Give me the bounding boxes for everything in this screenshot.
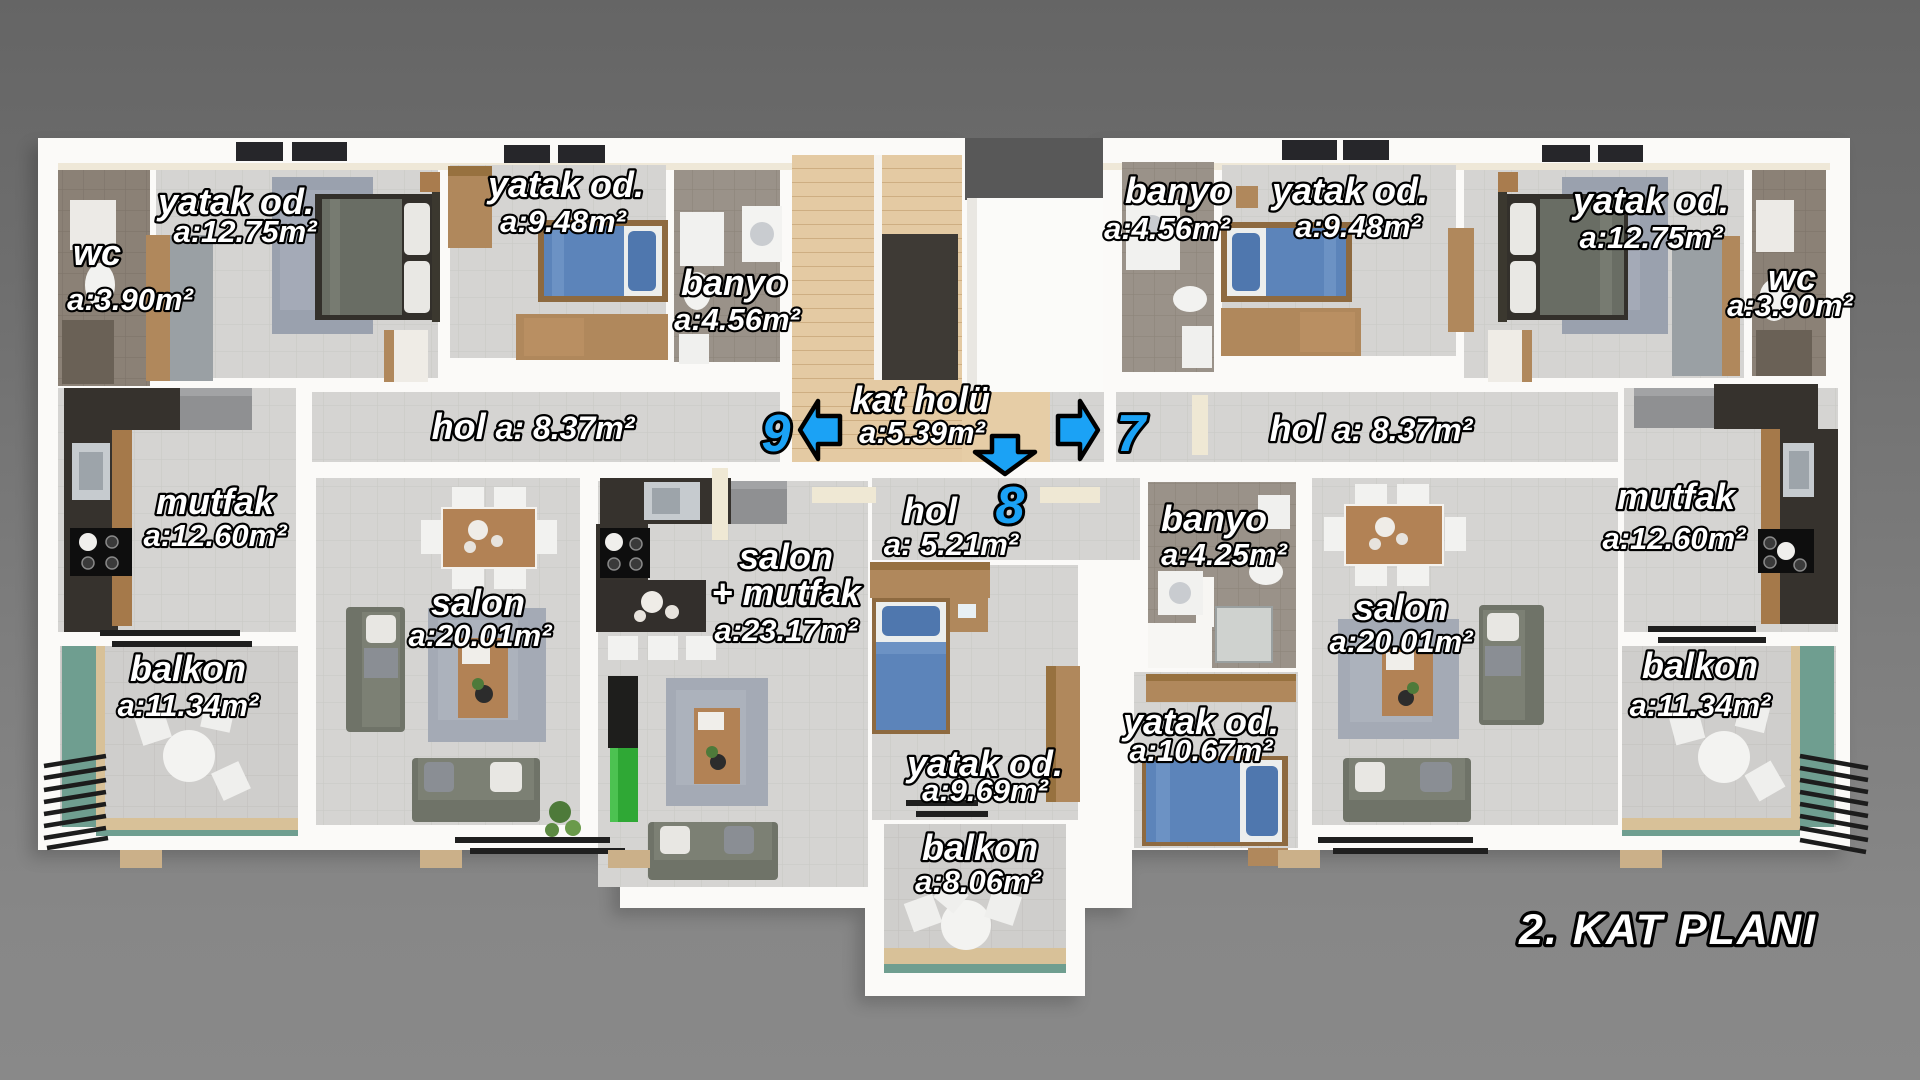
svg-text:a:9.69m²: a:9.69m² bbox=[922, 773, 1048, 808]
svg-text:banyo: banyo bbox=[1161, 498, 1267, 539]
svg-text:a:12.75m²: a:12.75m² bbox=[1579, 220, 1723, 255]
svg-text:a:4.56m²: a:4.56m² bbox=[674, 302, 800, 337]
svg-text:+ mutfak: + mutfak bbox=[711, 572, 862, 613]
svg-text:mutfak: mutfak bbox=[156, 481, 276, 522]
svg-text:a:11.34m²: a:11.34m² bbox=[1630, 688, 1771, 723]
svg-text:a:9.48m²: a:9.48m² bbox=[1295, 209, 1421, 244]
svg-text:banyo: banyo bbox=[681, 262, 787, 303]
svg-text:salon: salon bbox=[431, 582, 525, 623]
svg-text:kat holü: kat holü bbox=[852, 379, 990, 420]
svg-text:yatak od.: yatak od. bbox=[1270, 170, 1428, 211]
svg-text:a:3.90m²: a:3.90m² bbox=[1727, 288, 1853, 323]
svg-text:hol a: 8.37m²: hol a: 8.37m² bbox=[432, 406, 636, 447]
svg-text:mutfak: mutfak bbox=[1617, 476, 1737, 517]
svg-text:a:10.67m²: a:10.67m² bbox=[1129, 733, 1273, 768]
svg-text:banyo: banyo bbox=[1125, 170, 1231, 211]
svg-text:a:9.48m²: a:9.48m² bbox=[500, 204, 626, 239]
svg-text:a:23.17m²: a:23.17m² bbox=[714, 613, 858, 648]
svg-text:a:20.01m²: a:20.01m² bbox=[408, 618, 552, 653]
svg-text:balkon: balkon bbox=[130, 648, 246, 689]
svg-text:a:4.56m²: a:4.56m² bbox=[1104, 211, 1230, 246]
svg-text:a:12.75m²: a:12.75m² bbox=[173, 214, 317, 249]
svg-text:2. KAT PLANI: 2. KAT PLANI bbox=[1518, 906, 1817, 954]
svg-text:a:12.60m²: a:12.60m² bbox=[1602, 521, 1746, 556]
svg-text:a:8.06m²: a:8.06m² bbox=[915, 864, 1041, 899]
svg-text:balkon: balkon bbox=[1642, 645, 1758, 686]
svg-text:a:20.01m²: a:20.01m² bbox=[1329, 624, 1473, 659]
svg-text:8: 8 bbox=[996, 477, 1025, 535]
svg-text:hol: hol bbox=[903, 490, 958, 531]
svg-text:salon: salon bbox=[739, 536, 833, 577]
svg-text:a:3.90m²: a:3.90m² bbox=[67, 282, 193, 317]
svg-text:salon: salon bbox=[1354, 587, 1448, 628]
svg-text:7: 7 bbox=[1117, 405, 1148, 463]
svg-text:yatak od.: yatak od. bbox=[1571, 180, 1729, 221]
svg-text:a:5.39m²: a:5.39m² bbox=[859, 415, 985, 450]
svg-text:yatak od.: yatak od. bbox=[486, 164, 644, 205]
svg-text:a:11.34m²: a:11.34m² bbox=[118, 688, 259, 723]
svg-text:balkon: balkon bbox=[922, 827, 1038, 868]
svg-text:a:4.25m²: a:4.25m² bbox=[1161, 537, 1287, 572]
svg-text:a:12.60m²: a:12.60m² bbox=[143, 518, 287, 553]
svg-text:hol a: 8.37m²: hol a: 8.37m² bbox=[1270, 408, 1474, 449]
svg-text:wc: wc bbox=[73, 232, 121, 273]
svg-text:9: 9 bbox=[762, 405, 791, 463]
